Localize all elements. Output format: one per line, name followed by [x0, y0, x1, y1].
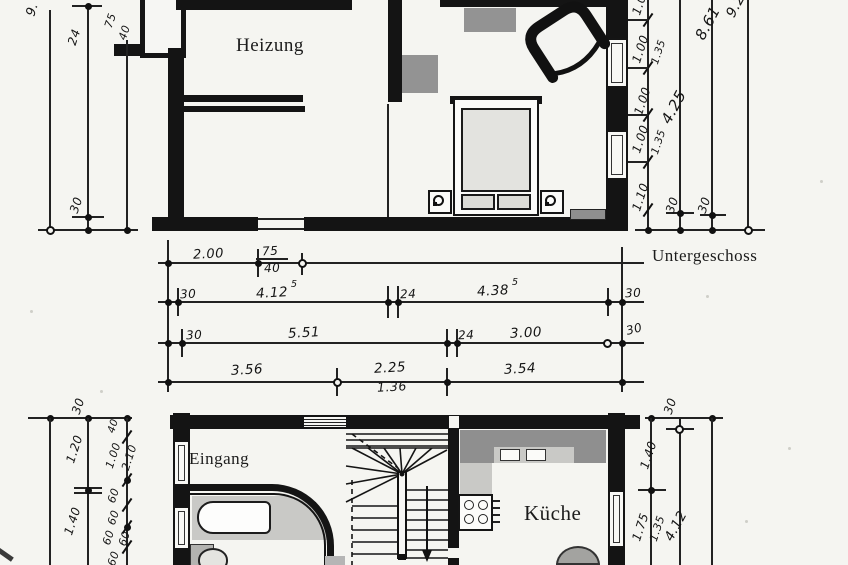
window	[173, 440, 190, 486]
dim-60: 60	[116, 529, 133, 547]
partition-wall	[388, 0, 402, 102]
dim-30: 30	[186, 328, 203, 343]
stove	[458, 494, 493, 531]
dim-3-54: 3.54	[504, 360, 537, 378]
door-swing	[556, 546, 600, 565]
dim-24: 24	[400, 287, 417, 302]
dim-1-35: 1.35	[649, 128, 668, 156]
burner-icon	[464, 500, 474, 510]
nightstand	[428, 190, 452, 214]
dim-30: 30	[180, 287, 197, 302]
stair-down-arrow	[422, 550, 432, 562]
bed-pillow	[497, 194, 531, 210]
cabinet	[464, 8, 516, 32]
dim-60: 60	[105, 486, 122, 504]
bed-mattress	[461, 108, 531, 192]
bottom-wall	[152, 217, 628, 231]
cabinet	[402, 55, 438, 93]
dim-30: 30	[69, 396, 87, 416]
window	[608, 490, 625, 548]
dim-30: 30	[67, 195, 85, 215]
dim-8-61: 8.61	[691, 3, 724, 43]
dim-60: 60	[105, 508, 122, 526]
dim-1-20: 1.20	[63, 433, 85, 465]
kitchen-cabinet-top	[494, 430, 574, 448]
kitchen-sink	[500, 449, 520, 461]
nightstand	[540, 190, 564, 214]
floor-plan-sheet: Heizung 9.	[0, 0, 848, 565]
dim-75: 75	[262, 244, 279, 259]
dim-24: 24	[458, 328, 475, 343]
dim-3-00: 3.00	[510, 324, 543, 342]
room-label-eingang: Eingang	[189, 449, 249, 469]
dim-75: 75	[102, 11, 119, 29]
dim-9-2: 9.2	[723, 0, 748, 20]
doormat	[570, 209, 606, 220]
scan-mark	[0, 547, 14, 561]
room-label-kueche: Küche	[524, 501, 581, 526]
dim-40: 40	[116, 23, 133, 41]
dim-30: 30	[625, 320, 644, 338]
dim-1-40: 1.40	[61, 505, 83, 537]
top-wall-left	[176, 0, 352, 10]
room-label-heizung: Heizung	[236, 35, 304, 57]
window	[606, 130, 628, 180]
interior-wall	[184, 106, 305, 112]
left-wall	[168, 48, 184, 231]
threshold	[325, 556, 345, 565]
dim-1-36: 1.36	[377, 378, 408, 395]
dim-4-12-sup: 5	[291, 279, 298, 290]
dim-30: 30	[625, 286, 642, 301]
dim-4-25: 4.25	[657, 87, 690, 127]
dim-1-40: 1.40	[637, 439, 659, 471]
entry-steps	[304, 417, 346, 427]
dim-30: 30	[661, 396, 679, 416]
dim-3-56: 3.56	[231, 361, 264, 379]
thin-partition	[387, 104, 389, 217]
kitchen-counter-left	[460, 463, 492, 497]
burner-icon	[478, 500, 488, 510]
dim-1-35: 1.35	[649, 38, 668, 66]
kitchen-tall-cabinet	[574, 430, 606, 463]
dim-4-38: 4.38	[477, 282, 510, 300]
dim-60: 60	[100, 528, 117, 546]
top-wall	[170, 415, 640, 429]
dim-4-38-sup: 5	[512, 277, 519, 288]
wall-stub	[114, 44, 142, 56]
floor-title: Untergeschoss	[652, 246, 757, 266]
burner-icon	[464, 514, 474, 524]
burner-icon	[478, 514, 488, 524]
staircase	[344, 428, 450, 565]
kitchen-sink	[526, 449, 546, 461]
dim-2-00: 2.00	[193, 246, 225, 263]
dim-40: 40	[105, 417, 121, 434]
armchair	[522, 0, 614, 92]
dim-24: 24	[65, 27, 83, 47]
toilet	[198, 548, 228, 565]
dim-60: 60	[105, 549, 122, 565]
dim-total-left: 9.	[23, 1, 41, 18]
kitchen-cabinet-corner	[460, 430, 494, 463]
bed-pillow	[461, 194, 495, 210]
dim-5-51: 5.51	[288, 324, 321, 342]
dim-2-25: 2.25	[374, 359, 407, 377]
interior-wall	[184, 95, 303, 102]
dim-40: 40	[264, 261, 281, 276]
dim-4-12: 4.12	[661, 508, 690, 544]
dim-4-12: 4.12	[256, 284, 289, 302]
